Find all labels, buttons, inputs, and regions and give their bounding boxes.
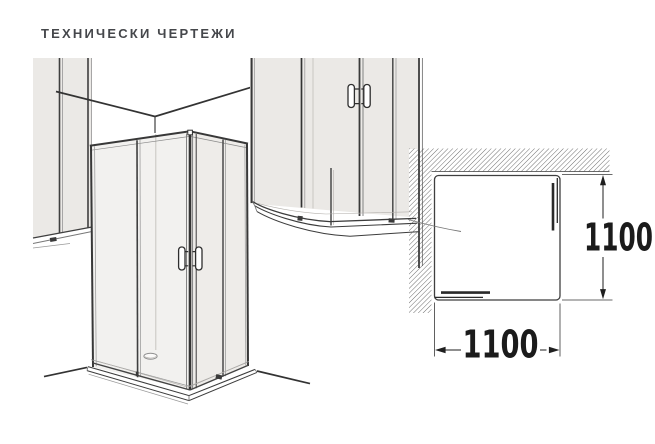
right-door-handle bbox=[364, 85, 370, 108]
horizontal-dimension: 1100 bbox=[435, 303, 561, 367]
arrow-down-icon bbox=[600, 289, 606, 299]
corner-profile-cap bbox=[188, 130, 193, 135]
dimension-label-width: 1100 bbox=[463, 323, 539, 367]
arrow-up-icon bbox=[600, 175, 606, 185]
dimension-label-depth: 1100 bbox=[584, 216, 653, 260]
plan-view: 1100 1100 bbox=[408, 149, 653, 367]
door-guide-mark bbox=[50, 237, 57, 242]
technical-drawing-page: ТЕХНИЧЕСКИ ЧЕРТЕЖИ bbox=[0, 0, 655, 444]
technical-drawing-canvas: 1100 1100 bbox=[0, 0, 655, 444]
arrow-left-icon bbox=[435, 347, 446, 353]
front-3d-view bbox=[250, 58, 422, 268]
arrow-right-icon bbox=[549, 347, 560, 353]
left-door-handle bbox=[348, 85, 354, 108]
left-wall-strip-view bbox=[33, 58, 92, 248]
tray-outline bbox=[435, 176, 561, 301]
left-door-handle bbox=[179, 247, 185, 270]
right-door-handle bbox=[196, 247, 202, 270]
vertical-dimension: 1100 bbox=[562, 175, 653, 301]
